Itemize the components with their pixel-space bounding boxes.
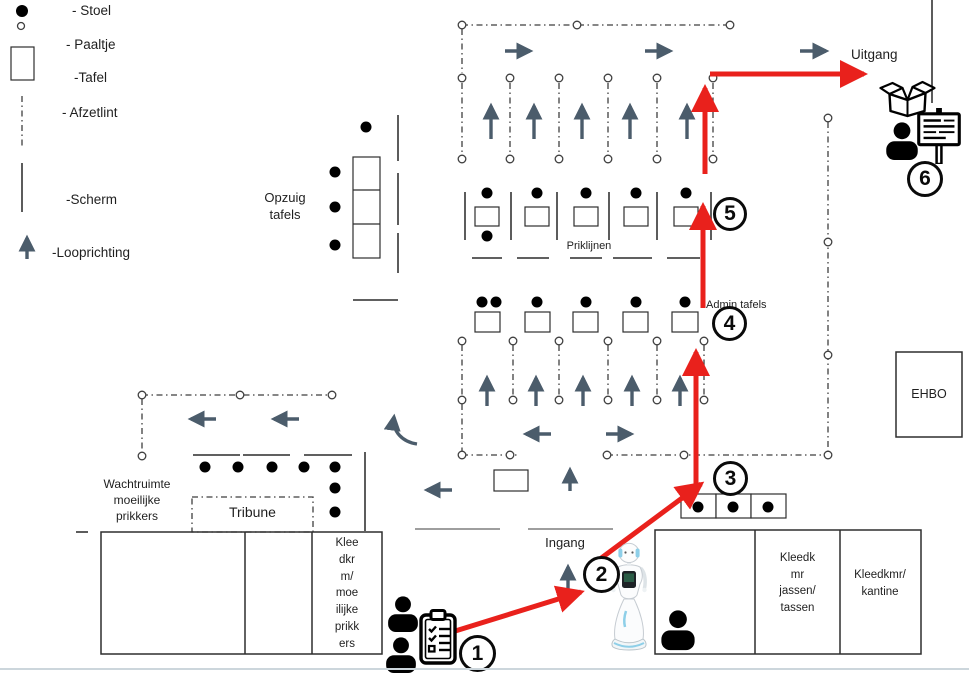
station-5-number: 5 [724, 202, 736, 226]
legend-symbols [11, 5, 34, 259]
right-boundary [824, 114, 832, 452]
kleedkamer-moeilijke-prikkers-label: Klee dkr m/ moe ilijke prikk ers [314, 535, 380, 652]
station-2-number: 2 [596, 563, 608, 587]
information-sign-icon [916, 108, 962, 164]
top-exit-lanes [458, 0, 932, 163]
bottom-divider [0, 668, 969, 670]
legend-label-stoel: - Stoel [72, 2, 111, 20]
legend-label-tafel: -Tafel [74, 69, 107, 87]
station-5-marker: 5 [713, 197, 747, 231]
priklijnen-label: Priklijnen [560, 239, 618, 253]
table-legend-icon [11, 47, 34, 80]
uitgang-label: Uitgang [851, 46, 898, 64]
station-2-marker: 2 [583, 556, 620, 593]
route-arrow-1-2 [452, 592, 581, 632]
person-icon [884, 120, 920, 162]
queue-lanes-group [394, 337, 832, 491]
chair-legend-icon [16, 5, 28, 17]
admin-tafels-group [475, 297, 698, 333]
person-icon [384, 633, 418, 677]
station-1-number: 1 [472, 642, 484, 666]
legend-label-afzetlint: - Afzetlint [62, 104, 118, 122]
station-3-number: 3 [725, 467, 737, 491]
kleedkamer-kantine-label: Kleedkmr/ kantine [842, 567, 918, 600]
vaccination-hall-floor-plan: .dd{fill:none;stroke:#3f3f3f;stroke-widt… [0, 0, 969, 677]
station-4-marker: 4 [712, 306, 747, 341]
clipboard-icon [418, 609, 458, 665]
person-icon [386, 592, 420, 636]
station-6-marker: 6 [907, 161, 943, 197]
u-turn-arrow [394, 417, 417, 444]
station-4-number: 4 [724, 312, 736, 336]
station3-tables [681, 494, 786, 518]
person-icon [659, 606, 697, 654]
station-6-number: 6 [919, 167, 931, 191]
station-3-marker: 3 [713, 461, 748, 496]
legend-label-looprichting: -Looprichting [52, 244, 130, 262]
post-legend-icon [18, 23, 25, 30]
opzuig-tafels-label: Opzuig tafels [253, 190, 317, 224]
station-1-marker: 1 [459, 635, 496, 672]
opzuig-tafels-group [330, 115, 399, 300]
legend-label-scherm: -Scherm [66, 191, 117, 209]
ehbo-label: EHBO [896, 352, 962, 437]
ingang-label: Ingang [533, 535, 597, 552]
legend-label-paaltje: - Paaltje [66, 36, 116, 54]
kleedkamer-jassen-tassen-label: Kleedk mr jassen/ tassen [757, 550, 838, 617]
wachtruimte-label: Wachtruimte moeilijke prikkers [94, 476, 180, 525]
tribune-label: Tribune [210, 503, 295, 521]
